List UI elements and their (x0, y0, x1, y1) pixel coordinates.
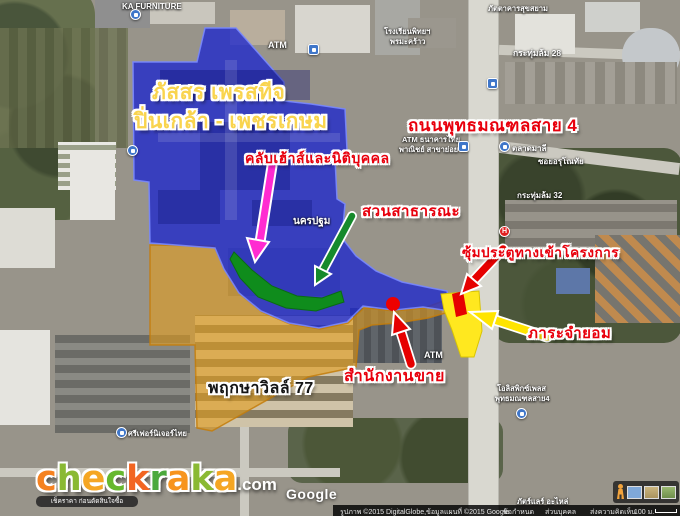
google-logo[interactable]: Google (286, 486, 337, 502)
shop-bag-icon[interactable] (127, 145, 138, 156)
map-canvas[interactable]: KA FURNITUREATMโรงเรียนพิทยฯพรมะคร้าวภัต… (0, 0, 680, 516)
scale-bar (655, 509, 677, 513)
bank-icon[interactable] (458, 141, 469, 152)
clubhouse-label: คลับเฮ้าส์และนิติบุคคล (245, 148, 390, 170)
checkraka-logo-tld: .com (237, 475, 277, 494)
shop-bag-icon[interactable] (116, 427, 127, 438)
checkraka-logo-letter: a (214, 459, 238, 499)
easement-label: ภาระจำยอม (528, 321, 611, 345)
satellite-layer-thumbnail[interactable] (644, 486, 659, 499)
map-place-label: พาณิชย์ สาขาย่อย (399, 144, 458, 156)
privacy-link[interactable]: ส่วนบุคคล (545, 507, 576, 516)
map-attribution: รูปภาพ ©2015 DigitalGlobe,ข้อมูลแผนที่ ©… (340, 507, 509, 516)
map-layer-thumbnail[interactable] (627, 486, 642, 499)
hospital-icon[interactable]: H (499, 226, 510, 237)
map-place-label: ATM (268, 40, 287, 50)
checkraka-logo: checkraka.com (36, 459, 277, 499)
map-place-label: ซอยอรุโณทัย (538, 155, 584, 168)
checkraka-logo-letter: k (126, 459, 149, 499)
map-view-control (613, 481, 679, 503)
pegman-icon[interactable] (616, 484, 625, 500)
checkraka-logo-letter: a (167, 459, 191, 499)
checkraka-logo-letter: c (105, 459, 126, 499)
map-place-label: ATM (424, 350, 443, 360)
terrain-layer-thumbnail[interactable] (661, 486, 676, 499)
bank-icon[interactable] (308, 44, 319, 55)
lodging-icon[interactable] (516, 408, 527, 419)
map-place-label: พรมะคร้าว (390, 36, 425, 48)
map-place-label: กระทุ่มล้ม 28 (513, 46, 561, 60)
sales-office-dot (386, 297, 400, 311)
map-place-label: นครปฐม (293, 214, 330, 229)
feedback-link[interactable]: ส่งความคิดเห็น (590, 507, 636, 516)
map-place-label: พุทธมณฑลสาย4 (495, 393, 550, 405)
checkraka-logo-letter: r (149, 459, 166, 499)
shop-cart-icon[interactable] (499, 141, 510, 152)
map-place-label: ภัตตาคารสุขสยาม (488, 3, 548, 15)
project-title-line2: ปิ่นเกล้า - เพชรเกษม (134, 105, 328, 138)
checkraka-logo-word: checkraka (36, 477, 237, 494)
map-place-label: ตลาดมาลี (512, 142, 546, 155)
checkraka-logo-letter: k (190, 459, 213, 499)
sales-office-label: สำนักงานขาย (344, 364, 445, 389)
bus-icon[interactable] (487, 78, 498, 89)
checkraka-tagline: เช็คราคา ก่อนตัดสินใจซื้อ (36, 496, 138, 507)
scale-text: 100 ม. (634, 507, 654, 516)
gate-label: ซุ้มประตูทางเข้าโครงการ (462, 241, 619, 263)
checkraka-logo-letter: e (82, 459, 106, 499)
road-label: ถนนพุทธมณฑลสาย 4 (408, 112, 577, 139)
pruksa-label: พฤกษาวิลล์ 77 (208, 376, 314, 401)
terms-link[interactable]: ข้อกำหนด (503, 507, 534, 516)
map-place-label: กระทุ่มล้ม 32 (517, 189, 562, 202)
checkraka-logo-letter: h (57, 459, 82, 499)
park-label: สวนสาธารณะ (362, 199, 460, 223)
checkraka-logo-letter: c (36, 459, 57, 499)
sales-office-arrow (401, 332, 411, 364)
shop-bag-icon[interactable] (130, 9, 141, 20)
map-place-label: ศรีเฟอร์นิเจอร์ไทย (128, 428, 187, 440)
